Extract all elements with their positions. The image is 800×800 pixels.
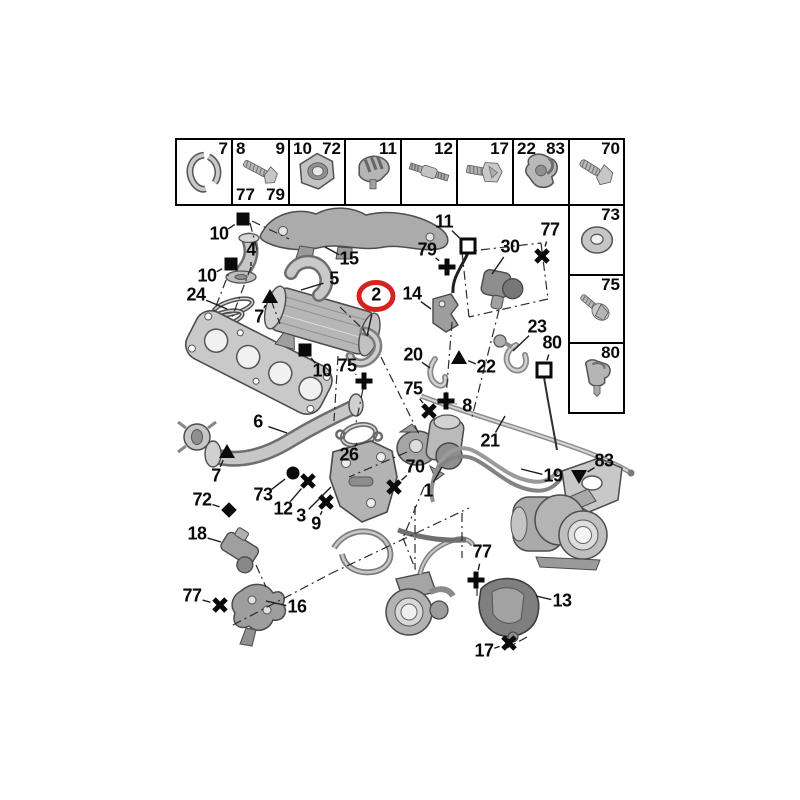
fastener-box-12: 12 <box>400 138 458 206</box>
callout-8: 8 <box>462 395 472 416</box>
part-number-label: 83 <box>546 140 565 158</box>
solenoid-30-drawing <box>478 269 526 314</box>
throttle-body-drawing <box>386 572 453 635</box>
callout-24: 24 <box>186 284 205 305</box>
callout-30: 30 <box>500 236 519 257</box>
part-number-label: 8 <box>236 140 245 158</box>
part-number-label: 80 <box>601 344 620 362</box>
callout-2: 2 <box>371 284 381 305</box>
callout-10: 10 <box>197 265 216 286</box>
callout-75: 75 <box>337 355 356 376</box>
part-number-label: 10 <box>293 140 312 158</box>
callout-15: 15 <box>339 248 358 269</box>
callout-21: 21 <box>480 430 499 451</box>
triangle-down-marker <box>571 470 587 484</box>
callout-77: 77 <box>472 541 491 562</box>
bracket-14-drawing <box>433 294 458 332</box>
callout-9: 9 <box>311 513 321 534</box>
black-square-marker <box>237 213 250 226</box>
fastener-box-70: 70 <box>568 138 625 206</box>
callout-70: 70 <box>405 456 424 477</box>
part-number-label: 73 <box>601 206 620 224</box>
callout-80: 80 <box>542 332 561 353</box>
part-number-label: 77 <box>236 186 255 204</box>
plus-marker <box>356 373 373 390</box>
callout-14: 14 <box>402 283 421 304</box>
plus-marker <box>468 572 485 589</box>
callout-19: 19 <box>543 465 562 486</box>
callout-10: 10 <box>209 223 228 244</box>
callout-7: 7 <box>254 306 264 327</box>
callout-1: 1 <box>423 480 433 501</box>
callout-3: 3 <box>296 505 306 526</box>
triangle-up-marker <box>219 444 235 458</box>
callout-7: 7 <box>211 465 221 486</box>
triangle-up-marker <box>451 350 467 364</box>
parts-diagram-page: 78977791072111217228370737580 1015410245… <box>0 0 800 800</box>
part-number-label: 75 <box>601 276 620 294</box>
part-number-label: 12 <box>434 140 453 158</box>
callout-77: 77 <box>182 585 201 606</box>
plus-marker <box>438 393 455 410</box>
plus-marker <box>439 259 456 276</box>
part-number-label: 79 <box>266 186 285 204</box>
callout-10: 10 <box>312 360 331 381</box>
part-number-label: 17 <box>490 140 509 158</box>
part-number-label: 72 <box>322 140 341 158</box>
part-number-label: 11 <box>379 140 397 158</box>
white-square-marker <box>536 362 553 379</box>
fastener-box-73: 73 <box>568 204 625 276</box>
callout-16: 16 <box>287 596 306 617</box>
callout-12: 12 <box>273 498 292 519</box>
callout-83: 83 <box>594 450 613 471</box>
part-number-label: 70 <box>601 140 620 158</box>
callout-11: 11 <box>435 211 453 232</box>
turbocharger-drawing <box>511 458 622 570</box>
hoses-drawing <box>334 530 473 574</box>
fastener-box-75: 75 <box>568 274 625 344</box>
callout-79: 79 <box>417 239 436 260</box>
black-square-marker <box>225 258 238 271</box>
white-square-marker <box>460 238 477 255</box>
fastener-box-72: 1072 <box>288 138 346 206</box>
part-number-label: 7 <box>219 140 228 158</box>
fastener-box-9: 897779 <box>231 138 290 206</box>
hose-clip-20-drawing <box>430 359 445 386</box>
callout-73: 73 <box>253 484 272 505</box>
fastener-box-7: 7 <box>175 138 233 206</box>
bracket-16-drawing <box>232 584 285 646</box>
callout-18: 18 <box>187 523 206 544</box>
callout-13: 13 <box>552 590 571 611</box>
part-number-label: 22 <box>517 140 536 158</box>
callout-26: 26 <box>339 444 358 465</box>
sensor-18-drawing <box>214 524 267 576</box>
callout-17: 17 <box>474 640 493 661</box>
callout-6: 6 <box>253 411 263 432</box>
exploded-diagram-drawing <box>0 0 800 800</box>
callout-20: 20 <box>403 344 422 365</box>
fastener-box-83: 2283 <box>512 138 570 206</box>
callout-77: 77 <box>540 219 559 240</box>
callout-72: 72 <box>192 489 211 510</box>
callout-5: 5 <box>329 268 339 289</box>
fastener-box-17: 17 <box>456 138 514 206</box>
callout-4: 4 <box>246 239 256 260</box>
callout-75: 75 <box>403 378 422 399</box>
black-square-marker <box>299 344 312 357</box>
fastener-box-80: 80 <box>568 342 625 414</box>
hose-clip-23-drawing <box>494 335 526 371</box>
part-number-label: 9 <box>276 140 285 158</box>
triangle-up-marker <box>262 289 278 303</box>
callout-22: 22 <box>476 356 495 377</box>
fastener-box-11: 11 <box>344 138 402 206</box>
